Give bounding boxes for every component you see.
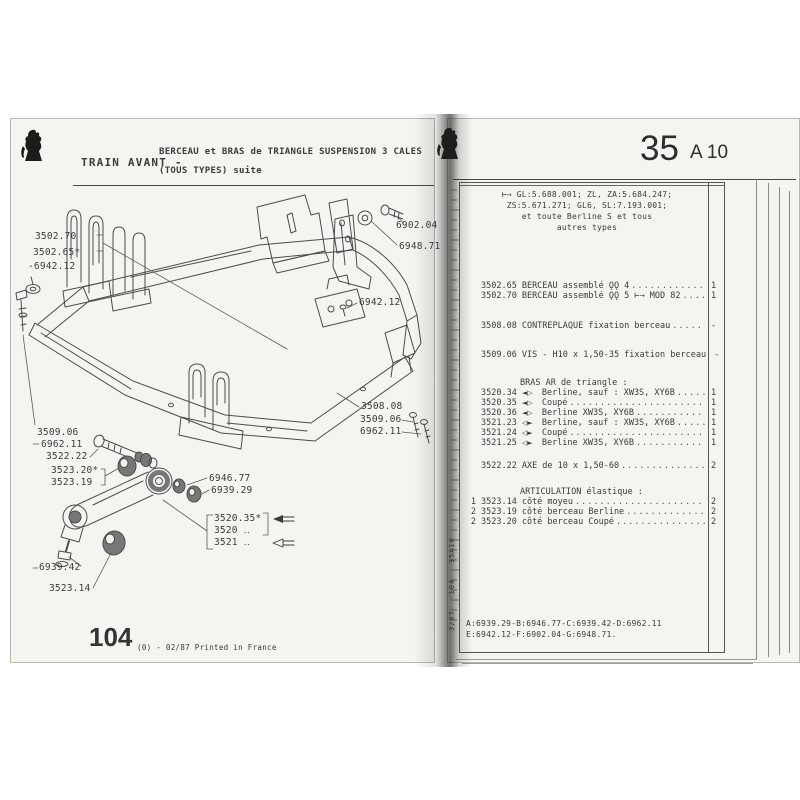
parts-row: 3509.06VIS - H10 x 1,50-35 fixation berc… (460, 350, 724, 360)
margin-tick (451, 469, 457, 471)
margin-tick (451, 339, 457, 341)
quantity-separator (708, 183, 709, 652)
applicability-note: ⊢→ GL:5.688.001; ZL, ZA:5.684.247;ZS:5.6… (480, 189, 694, 233)
parts-row: 3520.36◄▷Berline XW3S, XY6B1 (460, 408, 724, 418)
reference-footnote: A:6939.29-B:6946.77-C:6939.42-D:6962.11E… (466, 618, 662, 640)
margin-tick (451, 309, 457, 311)
bushing-6939-29 (187, 486, 201, 502)
margin-tick (451, 269, 459, 271)
margin-tick (451, 289, 457, 291)
margin-tick (451, 529, 457, 531)
diagram-label-l-6939-42: 6939.42 (39, 562, 80, 573)
parts-section-header: ARTICULATION élastique : (460, 487, 724, 497)
margin-tick (451, 389, 459, 391)
solid-arrow-icon (273, 515, 294, 523)
stud-6942-12-right (340, 305, 346, 316)
fork-bracket-left-rear (111, 227, 151, 311)
margin-tick (451, 399, 457, 401)
peugeot-lion-icon (20, 128, 44, 162)
fork-bracket-center (179, 364, 243, 449)
bushing-3523-20 (118, 456, 136, 476)
parts-row: 3502.70BERCEAU assemblé ǪǪ 5 ⊢→ MOD 821 (460, 291, 724, 301)
margin-tick (451, 489, 457, 491)
diagram-label-l-3509-06-right: 3509.06 (360, 414, 401, 425)
fork-bracket-left (63, 210, 111, 307)
margin-tick (451, 349, 457, 351)
parts-row: 3520.35◄▷Coupé1 (460, 398, 724, 408)
bolt-3509-06-left (16, 290, 27, 331)
page-edge-line (756, 179, 757, 659)
margin-tick (451, 229, 457, 231)
margin-tick (451, 409, 457, 411)
section-code: A 10 (690, 143, 728, 162)
parts-row: 3520.34◄▷Berline, sauf : XW3S, XY6B1 (460, 388, 724, 398)
right-mount-bracket (385, 325, 415, 377)
left-page: TRAIN AVANT - BERCEAU et BRAS de TRIANGL… (10, 118, 435, 663)
applicability-line: ZS:5.671.271; GL6, SL:7.193.001; (480, 200, 694, 211)
margin-tick (451, 519, 457, 521)
diagram-label-l-6962-11-right: 6962.11 (360, 426, 401, 437)
parts-section-header: BRAS AR de triangle : (460, 378, 724, 388)
variant-arrow-icon: ◄▷ (522, 388, 542, 398)
parts-row: 3502.65BERCEAU assemblé ǪǪ 41 (460, 281, 724, 291)
parts-table: ⊢→ GL:5.688.001; ZL, ZA:5.684.247;ZS:5.6… (459, 182, 725, 653)
margin-tick (451, 429, 457, 431)
washer-6948-71 (358, 211, 372, 225)
diagram-label-l-3502-70: 3502.70 (35, 231, 76, 242)
margin-tick (451, 239, 459, 241)
applicability-line: ⊢→ GL:5.688.001; ZL, ZA:5.684.247; (480, 189, 694, 200)
margin-tick (451, 249, 457, 251)
diagram-label-l-3523-14: 3523.14 (49, 583, 90, 594)
variant-arrow-icon: ◁► (522, 428, 542, 438)
margin-tick (451, 479, 459, 481)
margin-tick (451, 329, 459, 331)
margin-tick (451, 419, 459, 421)
parts-row: 3521.24◁►Coupé1 (460, 428, 724, 438)
page-edge-line (456, 659, 757, 660)
diagram-label-l-6946-77: 6946.77 (209, 473, 250, 484)
margin-tick (451, 439, 457, 441)
bolt-6902-04 (381, 205, 403, 219)
applicability-line: et toute Berline S et tous (480, 211, 694, 222)
spine-text: 3/87 104 35A10 (448, 537, 456, 631)
diagram-label-l-3502-65: 3502.65* (33, 247, 80, 258)
margin-tick (451, 199, 457, 201)
bolt-pair-3509-right (410, 413, 431, 444)
variant-arrow-icon: ◁► (522, 418, 542, 428)
parts-row: 3521.23◁►Berline, sauf : XW3S, XY6B1 (460, 418, 724, 428)
diagram-label-l-6902-04: 6902.04 (396, 220, 437, 231)
parts-row: 3521.25◁►Berline XW3S, XY6B1 (460, 438, 724, 448)
bushing-3523-14 (100, 529, 127, 558)
page-edge-line (789, 191, 790, 653)
hollow-arrow-icon (273, 539, 294, 547)
header-rule (453, 179, 796, 180)
footnote-line: E:6942.12-F:6902.04-G:6948.71. (466, 629, 662, 640)
bushing-6946-77 (173, 479, 185, 493)
diagram-label-l-3508-08: 3508.08 (361, 401, 402, 412)
margin-tick (451, 369, 457, 371)
diagram-label-l-3523-19: 3523.19 (51, 477, 92, 488)
book-spread: TRAIN AVANT - BERCEAU et BRAS de TRIANGL… (10, 118, 790, 663)
applicability-line: autres types (480, 222, 694, 233)
parts-row: 23523.20côté berceau Coupé2 (460, 517, 724, 527)
diagram-label-l-6948-71: 6948.71 (399, 241, 440, 252)
section-number: 35 (640, 131, 679, 166)
peugeot-lion-icon (436, 126, 460, 160)
margin-tick (451, 459, 457, 461)
margin-tick (451, 299, 459, 301)
margin-tick (451, 509, 459, 511)
scanned-parts-catalog: TRAIN AVANT - BERCEAU et BRAS de TRIANGL… (0, 0, 800, 800)
page-edge-line (768, 183, 769, 657)
variant-arrow-icon: ◄▷ (522, 408, 542, 418)
parts-rows: 3502.65BERCEAU assemblé ǪǪ 413502.70BERC… (460, 281, 724, 527)
variant-arrow-icon: ◁► (522, 438, 542, 448)
footnote-line: A:6939.29-B:6946.77-C:6939.42-D:6962.11 (466, 618, 662, 629)
variant-arrow-icon: ◄▷ (522, 398, 542, 408)
margin-tick (451, 209, 459, 211)
margin-tick (451, 319, 457, 321)
page-edge-line (462, 663, 753, 664)
margin-tick (451, 379, 457, 381)
margin-tick (451, 189, 457, 191)
margin-tick (451, 219, 457, 221)
parts-row: 13523.14côté moyeu2 (460, 497, 724, 507)
margin-tick (451, 449, 459, 451)
diagram-label-l-6962-11-left: 6962.11 (41, 439, 82, 450)
mid-bracket (315, 275, 365, 327)
page-edge-line (779, 187, 780, 655)
parts-row: 23523.19côté berceau Berline2 (460, 507, 724, 517)
diagram-label-l-6942-12-left: -6942.12 (28, 261, 75, 272)
right-page: 35 A 10 ⊢→ GL:5.688.001; ZL, ZA:5.684.24… (447, 118, 800, 663)
diagram-label-l-3520: 3520 ‥ (214, 525, 250, 536)
top-bracket (257, 195, 353, 273)
margin-tick (451, 359, 459, 361)
diagram-label-l-3509-06-left: 3509.06 (37, 427, 78, 438)
margin-tick (451, 259, 457, 261)
diagram-label-l-3521: 3521 ‥ (214, 537, 250, 548)
side-bracket (333, 215, 371, 289)
diagram-label-l-3523-20: 3523.20* (51, 465, 98, 476)
parts-row: 3508.08CONTREPLAQUE fixation berceau- (460, 321, 724, 331)
diagram-label-l-3522-22: 3522.22 (46, 451, 87, 462)
diagram-label-l-6942-12-right: 6942.12 (359, 297, 400, 308)
margin-tick (451, 279, 457, 281)
parts-row: 3522.22AXE de 10 x 1,50-602 (460, 461, 724, 471)
diagram-label-l-3520-35: 3520.35* (214, 513, 261, 524)
washer-6942-12 (26, 277, 40, 294)
diagram-label-l-6939-29: 6939.29 (211, 485, 252, 496)
margin-tick (451, 499, 457, 501)
